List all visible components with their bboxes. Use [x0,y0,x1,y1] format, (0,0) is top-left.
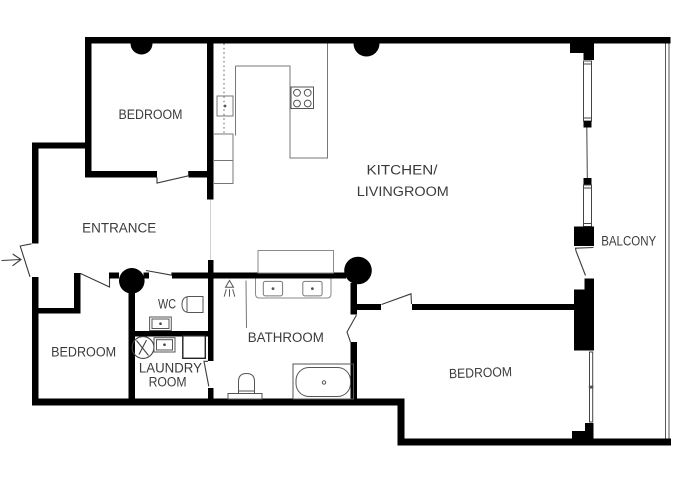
svg-text:WC: WC [158,297,176,312]
svg-text:LAUNDRY: LAUNDRY [139,361,202,376]
svg-text:BEDROOM: BEDROOM [119,107,183,122]
svg-text:KITCHEN/: KITCHEN/ [367,163,438,178]
svg-text:BEDROOM: BEDROOM [51,345,116,360]
svg-text:ENTRANCE: ENTRANCE [82,220,156,235]
svg-text:ROOM: ROOM [149,375,187,390]
svg-text:BATHROOM: BATHROOM [248,330,324,345]
svg-text:BALCONY: BALCONY [601,234,656,249]
svg-text:BEDROOM: BEDROOM [449,364,512,381]
svg-text:LIVINGROOM: LIVINGROOM [357,184,449,199]
